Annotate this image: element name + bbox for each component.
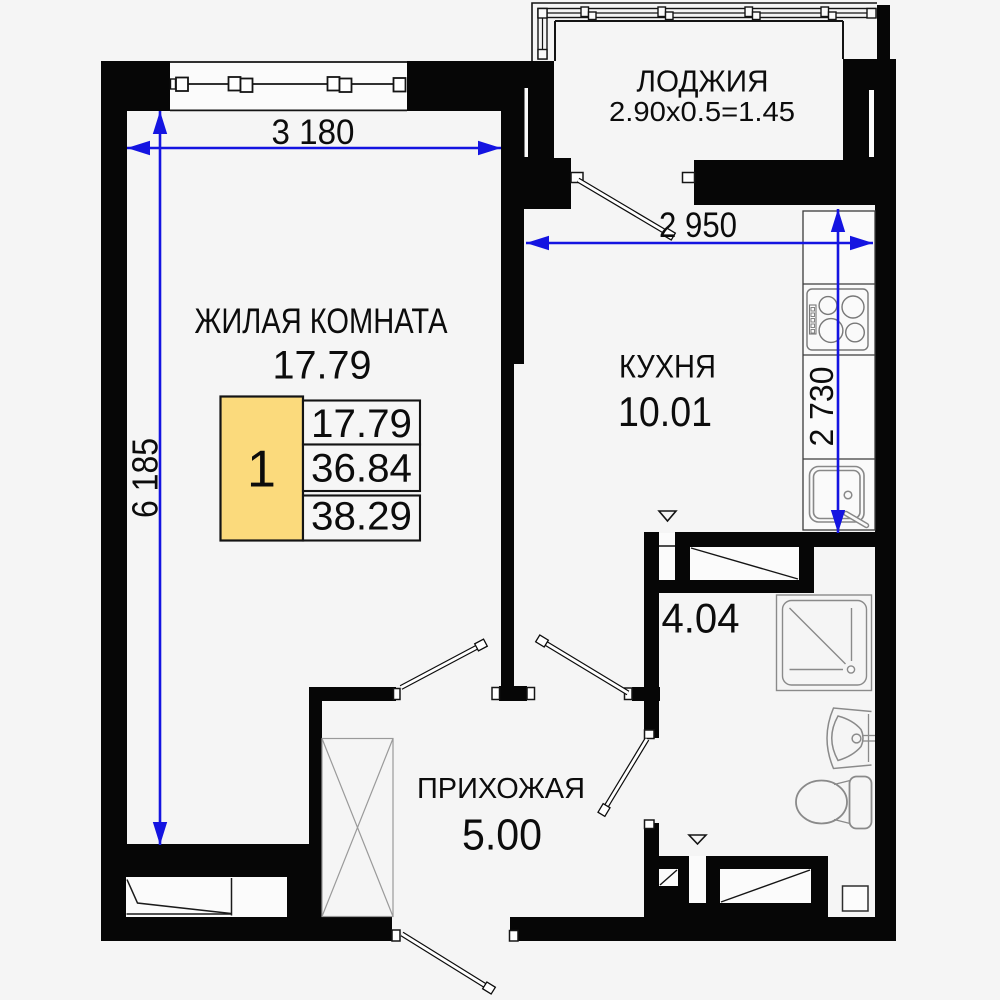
svg-text:ЖИЛАЯ КОМНАТА: ЖИЛАЯ КОМНАТА [195, 302, 449, 341]
svg-text:10.01: 10.01 [618, 388, 712, 435]
svg-text:1: 1 [247, 441, 276, 499]
svg-text:2 730: 2 730 [803, 367, 840, 447]
svg-text:2 950: 2 950 [659, 206, 737, 245]
svg-text:17.79: 17.79 [311, 402, 412, 446]
svg-text:6 185: 6 185 [125, 438, 166, 518]
svg-text:2.90х0.5=1.45: 2.90х0.5=1.45 [609, 96, 795, 127]
svg-text:ЛОДЖИЯ: ЛОДЖИЯ [637, 64, 769, 99]
svg-text:36.84: 36.84 [311, 447, 412, 491]
svg-text:17.79: 17.79 [273, 344, 372, 388]
svg-text:3 180: 3 180 [272, 113, 355, 152]
svg-text:38.29: 38.29 [311, 495, 412, 539]
svg-text:КУХНЯ: КУХНЯ [619, 349, 716, 385]
svg-text:4.04: 4.04 [662, 595, 740, 642]
svg-text:5.00: 5.00 [462, 811, 542, 860]
svg-text:ПРИХОЖАЯ: ПРИХОЖАЯ [417, 773, 585, 805]
